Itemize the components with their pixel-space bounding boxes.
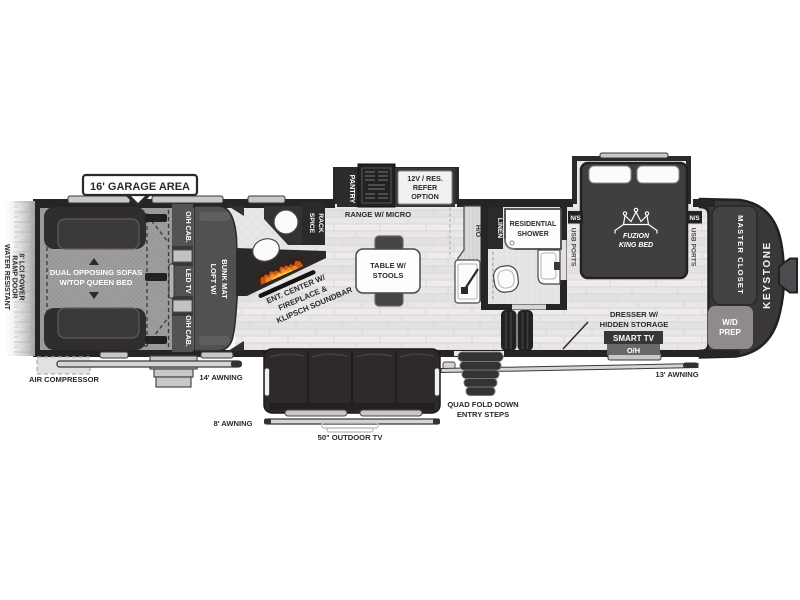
svg-text:HIDDEN STORAGE: HIDDEN STORAGE xyxy=(600,320,669,329)
svg-text:SPICE: SPICE xyxy=(308,213,315,234)
svg-text:14' AWNING: 14' AWNING xyxy=(199,373,242,382)
svg-text:W/D: W/D xyxy=(722,318,738,327)
svg-text:USB PORTS: USB PORTS xyxy=(570,228,577,267)
svg-text:RACK: RACK xyxy=(317,213,324,233)
svg-text:LOFT W/: LOFT W/ xyxy=(209,264,218,296)
svg-text:USB PORTS: USB PORTS xyxy=(690,228,697,267)
svg-text:SMART TV: SMART TV xyxy=(613,334,655,343)
svg-text:TABLE W/: TABLE W/ xyxy=(370,261,407,270)
svg-text:STOOLS: STOOLS xyxy=(373,271,404,280)
svg-text:LINEN: LINEN xyxy=(496,218,503,238)
svg-text:KEYSTONE: KEYSTONE xyxy=(762,241,773,309)
svg-text:13' AWNING: 13' AWNING xyxy=(655,370,698,379)
svg-text:8' AWNING: 8' AWNING xyxy=(213,419,252,428)
svg-text:N/S: N/S xyxy=(689,215,699,222)
svg-text:50" OUTDOOR TV: 50" OUTDOOR TV xyxy=(318,433,384,442)
svg-text:W/TOP QUEEN BED: W/TOP QUEEN BED xyxy=(60,278,133,287)
svg-text:QUAD FOLD DOWN: QUAD FOLD DOWN xyxy=(447,400,518,409)
svg-text:RANGE W/ MICRO: RANGE W/ MICRO xyxy=(345,210,411,219)
svg-text:DUAL OPPOSING SOFAS: DUAL OPPOSING SOFAS xyxy=(50,268,143,277)
svg-text:FUZION: FUZION xyxy=(623,233,650,240)
svg-text:RAMP DOOR: RAMP DOOR xyxy=(11,255,18,298)
svg-text:8' LCI POWER: 8' LCI POWER xyxy=(18,253,25,300)
svg-text:PANTRY: PANTRY xyxy=(348,175,357,204)
svg-text:O/H: O/H xyxy=(627,346,640,355)
svg-text:ENTRY STEPS: ENTRY STEPS xyxy=(457,410,509,419)
svg-text:MASTER CLOSET: MASTER CLOSET xyxy=(736,215,745,295)
svg-text:12V / RES.: 12V / RES. xyxy=(407,174,443,183)
svg-text:LED TV: LED TV xyxy=(184,269,191,294)
svg-text:SHOWER: SHOWER xyxy=(517,231,549,238)
svg-text:H/O: H/O xyxy=(474,225,481,238)
svg-text:WATER RESISTANT: WATER RESISTANT xyxy=(3,244,10,311)
svg-text:O/H CAB.: O/H CAB. xyxy=(184,315,191,347)
svg-text:N/S: N/S xyxy=(570,215,580,222)
svg-text:REFER: REFER xyxy=(413,183,438,192)
svg-text:AIR COMPRESSOR: AIR COMPRESSOR xyxy=(29,375,100,384)
svg-text:KING BED: KING BED xyxy=(619,242,653,249)
svg-text:16' GARAGE AREA: 16' GARAGE AREA xyxy=(90,181,190,193)
svg-text:DRESSER W/: DRESSER W/ xyxy=(610,310,659,319)
svg-text:OPTION: OPTION xyxy=(411,192,439,201)
svg-text:O/H CAB.: O/H CAB. xyxy=(184,211,191,243)
svg-text:BUNK MAT: BUNK MAT xyxy=(220,259,229,299)
svg-text:PREP: PREP xyxy=(719,328,741,337)
svg-text:RESIDENTIAL: RESIDENTIAL xyxy=(510,221,557,228)
